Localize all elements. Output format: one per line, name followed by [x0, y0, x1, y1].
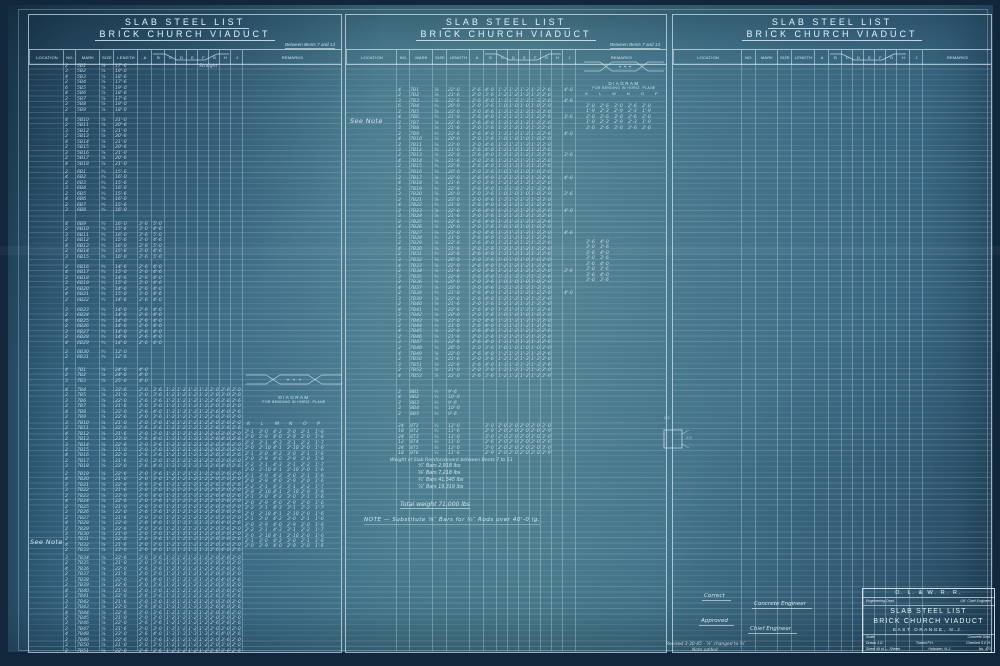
column-header-size: SIZE — [432, 50, 447, 64]
table-cell-text: ⅞ — [434, 259, 438, 264]
table-cell-text: 2'-6 — [232, 438, 241, 443]
table-cell-text: 1'-6 — [315, 480, 324, 485]
table-cell-text: 1'-2 — [531, 375, 540, 380]
table-cell-text: 7B26 — [410, 226, 422, 231]
table-cell-text: 2'-6 — [210, 650, 219, 655]
weight-total: Total weight 71,000 lbs — [400, 501, 470, 509]
table-cell-text: ⅞ — [434, 314, 438, 319]
table-cell-text: 1'-0 — [498, 347, 507, 352]
table-cell-text: 16'-0 — [115, 256, 127, 261]
column-line — [151, 63, 152, 651]
table-cell-text: 7B48 — [410, 347, 422, 352]
column-line — [814, 63, 815, 651]
table-cell-text: ⅞ — [434, 171, 438, 176]
column-line — [446, 63, 447, 651]
table-cell-text: 3 — [398, 171, 401, 176]
concrete-engineer-label: Concrete Engineer — [752, 601, 812, 609]
blueprint-screenshot: SLAB STEEL LIST BRICK CHURCH VIADUCT Bet… — [0, 0, 1000, 666]
column-header-h: H — [896, 50, 910, 64]
table-cell-text: ⅞ — [434, 375, 438, 380]
table-cell-text: 4'-0 — [153, 465, 162, 470]
correct-signature-label: Correct — [702, 593, 731, 601]
column-line — [483, 63, 484, 651]
column-header-size: SIZE — [99, 50, 114, 64]
title-text: SLAB STEEL LIST — [442, 17, 570, 29]
table-cell-text: 2'-0 — [542, 171, 551, 176]
table-cell-text: 3'-6 — [485, 375, 494, 380]
column-line — [63, 63, 64, 651]
panel-left-body: 25B1⅞17'-6Straight35B2⅞19'-045B3⅞18'-625… — [29, 63, 341, 651]
table-cell-text: 1'-3 — [199, 549, 208, 554]
column-line — [409, 63, 410, 651]
table-cell-text: 3 — [65, 380, 68, 385]
table-cell-text: 1'-0 — [531, 226, 540, 231]
column-line — [551, 63, 552, 651]
table-cell-text: 2 — [65, 356, 68, 361]
table-cell-text: 7B43 — [77, 606, 89, 611]
table-cell-text: 4'-0 — [564, 292, 573, 297]
table-cell-text: 18 — [398, 452, 404, 457]
revision-line-2: Note added — [692, 648, 746, 654]
title-block-line2: BRICK CHURCH VIADUCT — [863, 616, 994, 626]
table-cell-text: 3'-1 — [287, 529, 296, 534]
panel-middle: SLAB STEEL LIST BRICK CHURCH VIADUCT Bet… — [345, 14, 667, 653]
table-cell-text: 7B53 — [410, 375, 422, 380]
table-cell-text: ⅞ — [101, 465, 105, 470]
table-cell-text: 2'-0 — [472, 314, 481, 319]
table-cell-text: 5B9 — [77, 109, 86, 114]
table-cell-text: 1'-0 — [520, 259, 529, 264]
table-cell-text: 2'-6 — [472, 375, 481, 380]
column-line — [137, 63, 138, 651]
table-cell-text: 20'-0 — [448, 314, 460, 319]
table-cell-text: 2 — [65, 438, 68, 443]
table-cell-text: 4'-3 — [273, 529, 282, 534]
table-cell-text: ⅞ — [101, 380, 105, 385]
column-line — [432, 63, 433, 651]
table-cell-text: 1'-2 — [177, 650, 186, 655]
column-header-mark: MARK — [75, 50, 100, 64]
title-text: BRICK CHURCH VIADUCT — [742, 29, 921, 41]
table-cell-text: 4'-0 — [221, 438, 230, 443]
table-cell-text: 2 — [65, 299, 68, 304]
table-cell-text: 3'-6 — [485, 226, 494, 231]
panel-middle-title2: BRICK CHURCH VIADUCT — [346, 29, 666, 40]
column-line — [777, 63, 778, 651]
table-cell-text: 1'-3 — [188, 465, 197, 470]
column-line — [828, 63, 829, 651]
table-cell-text: 2'-6 — [139, 342, 148, 347]
table-cell-text: 7B33 — [77, 549, 89, 554]
table-cell-text: 22'-0 — [115, 650, 127, 655]
column-line — [896, 63, 897, 651]
title-block-line1: SLAB STEEL LIST — [863, 606, 994, 616]
diagram-subtitle: FOR BENDING IN HORIZ. PLANE — [246, 400, 342, 404]
table-cell-text: 7B28 — [77, 522, 89, 527]
table-cell-text: 2'-0 — [472, 138, 481, 143]
table-cell-text: 2'-6 — [210, 522, 219, 527]
column-header-mark: MARK — [409, 50, 433, 64]
table-cell-text: 1'-2 — [509, 375, 518, 380]
table-cell-text: 6B29 — [77, 342, 89, 347]
table-cell-text: 1'-2 — [188, 650, 197, 655]
table-cell-text: 7B42 — [410, 314, 422, 319]
table-cell-text: 4'-6 — [564, 232, 573, 237]
table-cell-text: 20'-0 — [448, 347, 460, 352]
column-header-mark: MARK — [755, 50, 778, 64]
table-cell-text: 2'-2 — [301, 529, 310, 534]
table-cell-text: 2'-6 — [139, 438, 148, 443]
weight-line: ½″ Bars 2,918 lbs — [418, 463, 590, 470]
table-cell-text: 7B51 — [77, 650, 89, 655]
table-cell-text: 2'-9 — [287, 480, 296, 485]
table-cell-text: 20'-0 — [448, 226, 460, 231]
title-text: BRICK CHURCH VIADUCT — [95, 29, 274, 41]
see-note-label-middle: See Note — [350, 117, 383, 125]
table-cell-text: 25'-0 — [115, 380, 127, 385]
table-cell-text: 2 — [398, 347, 401, 352]
table-cell-text: 3'-6 — [485, 171, 494, 176]
sheet-row: Sheet 49 of — Sheets Hoboken, N.J. No. 4… — [863, 647, 994, 653]
table-cell-text: 14'-6 — [115, 299, 127, 304]
diagram-subtitle: FOR BENDING IN HORIZ. PLANE — [584, 86, 664, 90]
table-cell-text: 3'-6 — [564, 116, 573, 121]
table-cell-text: 2 — [65, 109, 68, 114]
table-cell-text: 20'-0 — [448, 171, 460, 176]
table-cell-text: 2'-0 — [509, 452, 518, 457]
table-cell-text: 2'-9 — [259, 480, 268, 485]
panel-right-title2: BRICK CHURCH VIADUCT — [673, 29, 991, 40]
engineering-dept-label: Engineering Dept. — [866, 598, 895, 605]
table-cell-text: 2'-2 — [245, 529, 254, 534]
table-cell-text: 2'-0 — [542, 226, 551, 231]
table-cell-text: 2'-0 — [245, 545, 254, 550]
table-cell-text: 4'-0 — [221, 606, 230, 611]
table-cell-text: 1'-0 — [531, 171, 540, 176]
column-header-a: A — [814, 50, 829, 64]
table-cell-text: 2'-0 — [542, 259, 551, 264]
column-line — [113, 63, 114, 651]
table-cell-text: 5B18 — [77, 163, 89, 168]
table-cell-text: 2'-6 — [139, 606, 148, 611]
table-cell-text: 1'-0 — [520, 171, 529, 176]
table-cell-text: 2'-0 — [301, 480, 310, 485]
table-cell-text: 3'-6 — [485, 347, 494, 352]
panel-middle-title1: SLAB STEEL LIST — [346, 17, 666, 28]
table-cell-text: 1'-2 — [498, 375, 507, 380]
table-cell-text: 8T6 — [410, 452, 419, 457]
table-cell-text: 6B22 — [77, 299, 89, 304]
table-cell-text: 4'-0 — [153, 299, 162, 304]
table-cell-text: 2'-0 — [301, 545, 310, 550]
column-line — [469, 63, 470, 651]
table-cell-text: 1'-3 — [166, 438, 175, 443]
table-cell-text: ⅞ — [434, 226, 438, 231]
table-cell-text: 4'-0 — [153, 522, 162, 527]
table-cell-text: 2'-6 — [232, 549, 241, 554]
table-cell-text: 2'-6 — [139, 465, 148, 470]
table-cell-text: 2'-6 — [139, 650, 148, 655]
panel-middle-subtitle: Between Bents 7 and 13 — [610, 42, 660, 49]
approved-signature-label: Approved — [699, 618, 734, 626]
table-cell-text: 4 — [398, 375, 401, 380]
table-cell-text: 1'-0 — [509, 347, 518, 352]
panel-left-title1: SLAB STEEL LIST — [29, 17, 341, 28]
table-cell-text: 2 — [65, 650, 68, 655]
column-line — [164, 63, 165, 651]
column-header-location: LOCATION — [346, 50, 397, 64]
table-cell-text: 7B16 — [410, 171, 422, 176]
table-cell-text: 1'-0 — [531, 314, 540, 319]
table-cell-text: 23'-0 — [115, 606, 127, 611]
table-cell-text: 23'-0 — [115, 549, 127, 554]
column-line — [396, 63, 397, 651]
table-cell-text: 4'-0 — [153, 549, 162, 554]
column-header-remarks: REMARKS — [242, 50, 342, 64]
bent-bar-fan-icon — [584, 58, 664, 76]
table-cell-text: 1'-0 — [498, 259, 507, 264]
table-cell-text: 1'-3 — [166, 522, 175, 527]
table-cell-text: 2'-0 — [542, 138, 551, 143]
column-line — [741, 63, 742, 651]
table-cell-text: 1'-0 — [531, 259, 540, 264]
weight-line: ⅝″ Bars 7,218 lbs — [418, 470, 590, 477]
column-header-no: NO. — [741, 50, 756, 64]
table-cell-text: 2'-0 — [472, 226, 481, 231]
column-line — [885, 63, 886, 651]
table-cell-text: ⅞ — [101, 606, 105, 611]
table-cell-text: 4'-0 — [221, 522, 230, 527]
column-line — [922, 63, 923, 651]
table-cell-text: 1'-0 — [520, 314, 529, 319]
column-line — [197, 63, 198, 651]
table-cell-text: 2'-9 — [287, 545, 296, 550]
panel-left-bend-table: 2'-13'-04'-23'-02'-11'-62'-02'-94'-02'-9… — [245, 63, 341, 651]
table-cell-text: 3'-6 — [564, 270, 573, 275]
column-line — [529, 63, 530, 651]
table-cell-text: 12'-6 — [115, 356, 127, 361]
column-header-no: NO. — [396, 50, 410, 64]
column-line — [518, 63, 519, 651]
table-cell-text: 1'-3 — [166, 606, 175, 611]
table-cell-text: 20'-0 — [448, 259, 460, 264]
table-cell-text: ⅞ — [101, 163, 105, 168]
table-cell-text: 14'-0 — [115, 342, 127, 347]
table-cell-text: 2 — [65, 549, 68, 554]
table-cell-text: 2'-6 — [232, 465, 241, 470]
table-cell-text: 1'-0 — [498, 314, 507, 319]
table-cell-text: 1'-0 — [498, 138, 507, 143]
panel-right-body — [673, 63, 991, 651]
table-cell-text: 4'-0 — [564, 177, 573, 182]
table-cell-text: 4'-0 — [273, 545, 282, 550]
table-cell-text: 1'-3 — [177, 606, 186, 611]
table-cell-text: 4 — [398, 226, 401, 231]
table-cell-text: 23'-0 — [115, 438, 127, 443]
column-line — [175, 63, 176, 651]
table-cell-text: 23'-0 — [115, 465, 127, 470]
column-line — [99, 63, 100, 651]
table-cell-text: 4'-0 — [221, 465, 230, 470]
column-line — [242, 63, 243, 651]
column-line — [496, 63, 497, 651]
table-cell-text: 2'-0 — [245, 480, 254, 485]
table-cell-text: 7B3 — [77, 380, 86, 385]
revision-line-1: Revised 3-30-45 - ⅞″ changed to ¾″ — [666, 642, 746, 648]
table-cell-text: 1'-0 — [531, 347, 540, 352]
table-cell-text: 2'-0 — [542, 314, 551, 319]
column-line — [791, 63, 792, 651]
table-cell-text: 1'-3 — [199, 522, 208, 527]
table-cell-text: 2'-0 — [520, 452, 529, 457]
office-label: Off. Chief Engineer — [960, 598, 991, 605]
panel-right: SLAB STEEL LIST BRICK CHURCH VIADUCT LOC… — [672, 14, 992, 653]
table-cell-text: 1'-0 — [509, 259, 518, 264]
table-cell-text: 3'-6 — [485, 314, 494, 319]
table-cell-text: 4'-0 — [153, 342, 162, 347]
table-cell-text: 2'-6 — [232, 650, 241, 655]
table-cell-text: 1'-0 — [498, 171, 507, 176]
table-cell-text: 4'-0 — [221, 549, 230, 554]
panel-right-title1: SLAB STEEL LIST — [673, 17, 991, 28]
table-cell-text: ⅞ — [101, 438, 105, 443]
table-cell-text: 2'-9 — [259, 545, 268, 550]
table-cell-text: 1'-0 — [509, 226, 518, 231]
panel-left-subtitle: Between Bents 7 and 13 — [285, 42, 335, 49]
table-cell-text: 1'-0 — [498, 226, 507, 231]
table-cell-text: 9'-6 — [448, 413, 457, 418]
office-location-label: Hoboken, N.J. — [928, 647, 950, 653]
table-cell-text: 3'-6 — [600, 279, 609, 284]
table-cell-text: 1'-7 — [315, 529, 324, 534]
table-cell-text: ⅞ — [434, 347, 438, 352]
table-cell-text: 1'-3 — [188, 606, 197, 611]
table-cell-text: 1'-3 — [188, 549, 197, 554]
table-cell-text: 2'-6 — [542, 375, 551, 380]
table-cell-text: 3'-1 — [259, 529, 268, 534]
table-cell-text: 4 — [65, 522, 68, 527]
title-block: D. L. & W. R. R. Engineering Dept. Off. … — [862, 588, 995, 653]
table-cell-text: 2 — [65, 606, 68, 611]
table-cell-text: 1'-0 — [520, 226, 529, 231]
weight-line: ¾″ Bars 41,545 lbs — [418, 477, 590, 484]
table-cell-text: 1'-0 — [509, 138, 518, 143]
railroad-name: D. L. & W. R. R. — [863, 589, 994, 598]
table-cell-text: 4'-0 — [273, 480, 282, 485]
table-cell-text: ⅞ — [101, 109, 105, 114]
table-cell-text: ¾ — [101, 299, 105, 304]
column-header-location: LOCATION — [29, 50, 64, 64]
table-cell-text: 4'-0 — [564, 89, 573, 94]
table-cell-text: ⅞ — [101, 650, 105, 655]
table-cell-text: 20'-0 — [448, 138, 460, 143]
table-cell-text: 2 — [398, 314, 401, 319]
table-cell-text: 3'-6 — [139, 256, 148, 261]
table-cell-text: ½ — [434, 452, 438, 457]
column-line — [863, 63, 864, 651]
table-cell-text: 4'-0 — [153, 438, 162, 443]
table-cell-text: 1'-3 — [199, 606, 208, 611]
column-header-b: B — [483, 50, 497, 64]
table-cell-text: 2'-6 — [210, 549, 219, 554]
table-cell-text: 1'-3 — [188, 522, 197, 527]
title-block-location: EAST ORANGE, N.J. — [863, 626, 994, 635]
sheet-number-label: Sheet 49 of — Sheets — [866, 647, 900, 653]
column-header-a: A — [469, 50, 484, 64]
table-cell-text: 3'-6 — [564, 154, 573, 159]
panel-left-title2: BRICK CHURCH VIADUCT — [29, 29, 341, 40]
table-cell-text: 1'-2 — [520, 375, 529, 380]
column-header-length: LENGTH — [113, 50, 138, 64]
table-cell-text: 3 — [65, 256, 68, 261]
weight-line: ⅞″ Bars 19,319 lbs — [418, 484, 590, 491]
table-cell-text: 2'-6 — [232, 606, 241, 611]
revision-note: Revised 3-30-45 - ⅞″ changed to ¾″ Note … — [666, 642, 746, 653]
column-line — [540, 63, 541, 651]
table-cell-text: 7B32 — [410, 259, 422, 264]
table-cell-text: 21'-0 — [115, 163, 127, 168]
panel-middle-body: 47B1⅞22'-02'-64'-01'-21'-21'-21'-22'-64'… — [346, 63, 666, 651]
table-cell-text: 1'-0 — [531, 138, 540, 143]
column-header-j: J — [909, 50, 923, 64]
table-cell-text: 3 — [65, 209, 68, 214]
column-header-location: LOCATION — [673, 50, 742, 64]
column-header-j: J — [562, 50, 576, 64]
table-cell-text: 4'-0 — [564, 210, 573, 215]
panel-middle-remarks-table-2: 3'-64'-03'-03'-63'-64'-03'-03'-63'-64'-0… — [586, 63, 662, 651]
table-cell-text: 1'-2 — [166, 650, 175, 655]
title-text: SLAB STEEL LIST — [768, 17, 896, 29]
column-line — [208, 63, 209, 651]
table-cell-text: 4'-6 — [564, 100, 573, 105]
table-cell-text: 1'-0 — [520, 347, 529, 352]
table-cell-text: 2'-0 — [542, 347, 551, 352]
column-line — [755, 63, 756, 651]
table-cell-text: 6B8 — [77, 209, 86, 214]
square-detail-side-label: 2'-0 — [686, 436, 692, 440]
table-cell-text: 4'-0 — [153, 606, 162, 611]
title-text: BRICK CHURCH VIADUCT — [416, 29, 595, 41]
table-cell-text: 18'-0 — [115, 109, 127, 114]
table-cell-text: 4 — [65, 342, 68, 347]
column-line — [562, 63, 563, 651]
table-cell-text: 2'-0 — [472, 171, 481, 176]
table-cell-text: 2'-6 — [210, 606, 219, 611]
table-cell-text: 1'-0 — [509, 314, 518, 319]
column-line — [507, 63, 508, 651]
square-detail-top-label: 2'-0 — [664, 416, 670, 420]
table-cell-text: 1'-3 — [177, 522, 186, 527]
see-note-label-left: See Note — [30, 538, 63, 546]
table-cell-text: 3'-6 — [564, 193, 573, 198]
table-cell-text: ¾ — [101, 256, 105, 261]
column-header-a: A — [137, 50, 152, 64]
table-cell-text: 3'-0 — [586, 279, 595, 284]
column-line — [230, 63, 231, 651]
department-row: Engineering Dept. Off. Chief Engineer — [863, 598, 994, 606]
diagram-letters: K L M N O P — [584, 91, 664, 96]
table-cell-text: 5'-0 — [153, 256, 162, 261]
table-cell-text: 1'-3 — [166, 465, 175, 470]
column-header-b: B — [828, 50, 842, 64]
table-cell-text: 2 — [398, 413, 401, 418]
table-cell-text: 2'-9 — [485, 452, 494, 457]
bending-diagram-middle: DIAGRAM FOR BENDING IN HORIZ. PLANE K L … — [584, 58, 664, 96]
table-cell-text: 1'-0 — [520, 138, 529, 143]
title-text: SLAB STEEL LIST — [121, 17, 249, 29]
table-cell-text: 23'-0 — [115, 522, 127, 527]
column-header-length: LENGTH — [446, 50, 470, 64]
